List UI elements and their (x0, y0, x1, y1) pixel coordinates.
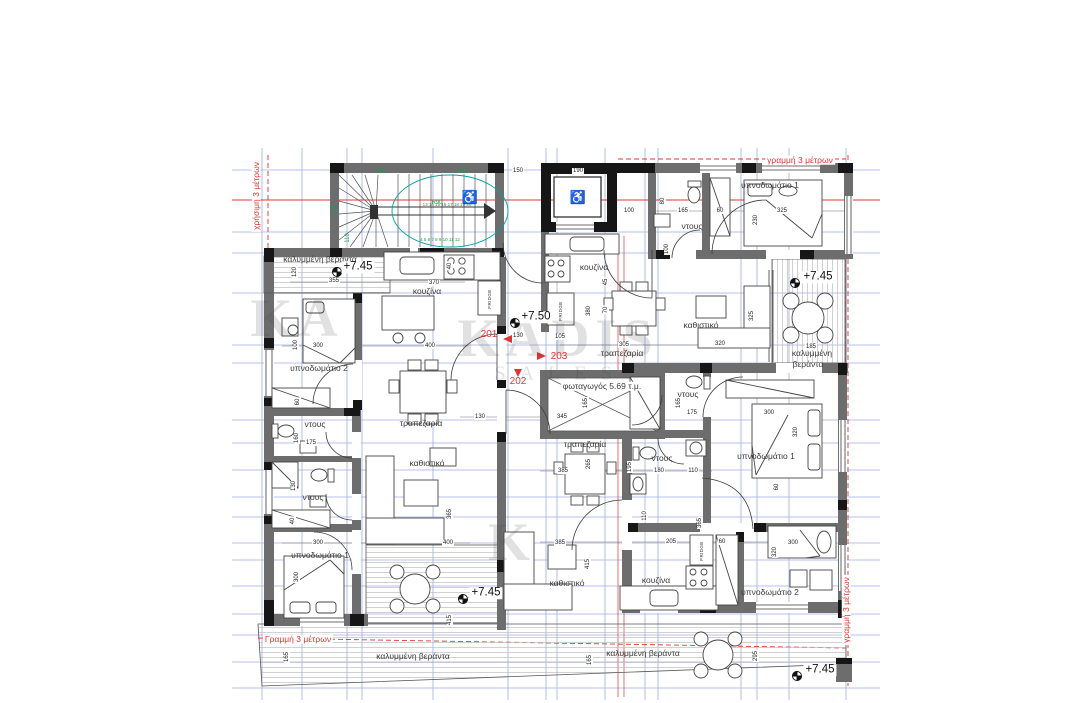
dimension-label: 305 (618, 342, 630, 348)
setback-line-label: γραμμή 3 μέτρων (842, 575, 851, 645)
room-label: φωταγωγός 5.69 τ.μ. (561, 382, 643, 391)
dimension-label: 320 (793, 426, 799, 438)
room-label: ντους (305, 420, 326, 429)
room-label: ντους (652, 454, 673, 463)
dimension-label: 205 (665, 539, 677, 545)
fixture-label: FRIDGE (559, 301, 564, 320)
dimension-label: 80 (660, 197, 666, 206)
dimension-label: 355 (328, 278, 340, 284)
room-label: τραπεζαρία (564, 440, 607, 449)
floor-plan-canvas: KA KADIS SALES K καλυμμένη βεράντακουζίν… (0, 0, 1080, 703)
dimension-label: 265 (586, 458, 592, 470)
stair-annotation: 110 (345, 233, 351, 243)
wheelchair-icon: ♿ (570, 191, 587, 204)
dimension-label: 60 (716, 208, 725, 214)
unit-number: 202 (510, 377, 527, 387)
room-label: καθιστικό (409, 459, 444, 468)
dimension-label: 345 (556, 414, 568, 420)
dimension-label: 400 (424, 343, 436, 349)
dimension-label: 180 (653, 468, 665, 474)
dimension-label: 160 (294, 432, 300, 444)
room-label: καλυμμένη βεράντα (606, 649, 680, 658)
level-marker: +7.45 (469, 587, 502, 599)
dimension-label: 175 (686, 410, 698, 416)
dimension-label: 175 (305, 440, 317, 446)
dimension-label: 60 (718, 539, 727, 545)
room-label: υπνοδωμάτιο 2 (741, 588, 799, 597)
dimension-label: 185 (805, 344, 817, 350)
dimension-label: 100 (664, 243, 670, 255)
dimension-label: 40 (290, 517, 296, 526)
dimension-label: 385 (557, 468, 569, 474)
room-label: τραπεζαρία (601, 349, 644, 358)
dimension-label: 165 (284, 651, 290, 663)
dimension-label: 165 (583, 397, 589, 409)
room-label: κουζίνα (413, 287, 441, 296)
dimension-label: 325 (749, 310, 755, 322)
unit-number: 201 (481, 330, 498, 340)
dimension-label: 40 (447, 262, 453, 271)
dimension-label: 385 (554, 540, 566, 546)
unit-number: 203 (551, 352, 568, 362)
room-label: υπνοδωμάτιο 1 (737, 452, 795, 461)
dimension-label: 370 (428, 280, 440, 286)
dimension-label: 195 (627, 461, 633, 473)
setback-line-label: χρήσιμη 3 μέτρων (252, 160, 261, 232)
dimension-label: 130 (512, 333, 524, 339)
dimension-label: 300 (787, 540, 799, 546)
dimension-label: 380 (586, 305, 592, 317)
dimension-label: 130 (291, 480, 297, 492)
dimension-label: 165 (677, 208, 689, 214)
setback-line-label: Γραμμή 3 μέτρων (263, 635, 333, 644)
dimension-label: 230 (753, 214, 759, 226)
level-marker: +7.45 (803, 664, 836, 676)
room-label: κουζίνα (580, 263, 608, 272)
room-label: υπνοδωμάτιο 1 (291, 551, 349, 560)
dimension-label: 110 (642, 510, 648, 522)
room-label: υπνοδωμάτιο 1 (741, 181, 799, 190)
dimension-label: 415 (585, 558, 591, 570)
room-label: ντους (303, 493, 324, 502)
fixture-label: FRIDGE (700, 541, 705, 560)
dimension-label: 300 (312, 343, 324, 349)
level-marker: +7.45 (341, 261, 374, 273)
dimension-label: 105 (554, 334, 566, 340)
stair-annotation: 4 5 6 7 8 9 10 11 12 (420, 238, 460, 243)
dimension-label: 295 (753, 650, 759, 662)
fixture-label: FRIDGE (488, 289, 493, 308)
dimension-label: 45 (603, 278, 609, 287)
room-label: καθιστικό (549, 579, 584, 588)
dimension-label: 120 (292, 266, 298, 278)
dimension-label: 300 (763, 410, 775, 416)
dimension-label: 320 (714, 341, 726, 347)
dimension-label: 130 (474, 414, 486, 420)
room-label: καθιστικό (683, 321, 718, 330)
dimension-label: 100 (293, 339, 299, 351)
dimension-label: 415 (447, 614, 453, 626)
dimension-label: 60 (774, 483, 780, 492)
room-label: ντους (682, 222, 703, 231)
room-label: τραπεζαρία (400, 419, 443, 428)
dimension-label: 400 (442, 540, 454, 546)
dimension-label: 190 (572, 168, 584, 174)
dimension-label: 100 (623, 208, 635, 214)
room-label: υπνοδωμάτιο 2 (290, 364, 348, 373)
setback-line-label: γραμμή 3 μέτρων (765, 156, 835, 165)
label-layer: καλυμμένη βεράντακουζίναυπνοδωμάτιο 2ντο… (0, 0, 1080, 703)
room-label: καλυμμένη (792, 349, 832, 358)
stair-annotation: 185 (457, 169, 467, 175)
room-label: κουζίνα (642, 576, 670, 585)
dimension-label: 150 (512, 168, 524, 174)
dimension-label: 365 (447, 508, 453, 520)
level-marker: +7.50 (519, 311, 552, 323)
dimension-label: 300 (312, 540, 324, 546)
level-marker: +7.45 (801, 271, 834, 283)
room-label: βεράντα (793, 360, 824, 369)
dimension-label: 165 (587, 654, 593, 666)
stair-annotation: 110 (333, 206, 339, 216)
dimension-label: 70 (603, 306, 609, 315)
dimension-label: 365 (697, 517, 703, 529)
dimension-label: 300 (294, 571, 300, 583)
room-label: καλυμμένη βεράντα (376, 652, 450, 661)
dimension-label: 60 (295, 398, 301, 407)
stair-annotation: 310 (376, 169, 386, 175)
dimension-label: 325 (776, 208, 788, 214)
dimension-label: 320 (772, 546, 778, 558)
wheelchair-icon: ♿ (462, 191, 478, 204)
dimension-label: 165 (676, 397, 682, 409)
dimension-label: 110 (687, 468, 699, 474)
